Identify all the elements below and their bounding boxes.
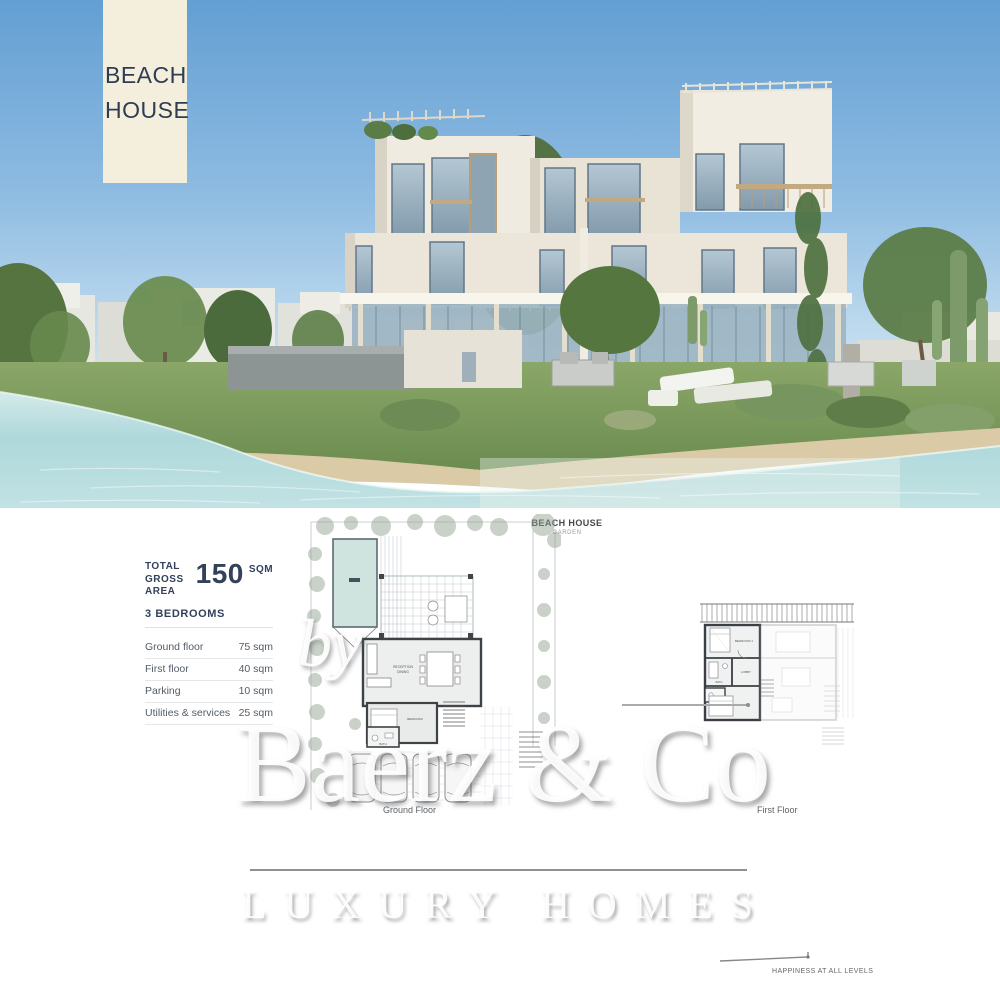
room-label: BEDROOM 1 bbox=[735, 639, 753, 643]
ground-floor-plan: RECEPTION DINING BEDROOM BATH bbox=[303, 514, 561, 818]
total-gross-area-label: TOTAL GROSS AREA bbox=[145, 561, 184, 599]
bedrooms-count: 3 BEDROOMS bbox=[145, 608, 273, 628]
total-gross-area: TOTAL GROSS AREA 150 SQM bbox=[145, 561, 273, 599]
parking-area bbox=[345, 752, 481, 802]
first-floor-label: First Floor bbox=[757, 805, 798, 815]
pool-deck bbox=[381, 536, 401, 640]
row-value: 40 sqm bbox=[239, 663, 273, 675]
exterior-stairs bbox=[519, 732, 543, 767]
row-value: 25 sqm bbox=[239, 707, 273, 719]
hero-photo: BEACH HOUSE bbox=[0, 0, 1000, 508]
watermark-tagline: LUXURY HOMES bbox=[242, 881, 771, 928]
stairs-faded bbox=[822, 728, 844, 744]
badge-line-1: BEACH bbox=[105, 58, 184, 93]
room-label: BATH bbox=[379, 742, 386, 746]
room-label: DINING bbox=[397, 670, 409, 674]
first-floor-terrace-faded bbox=[760, 625, 853, 720]
first-floor-plan: BEDROOM 1 LOBBY BATH bbox=[686, 594, 864, 750]
row-value: 75 sqm bbox=[239, 641, 273, 653]
specs-panel: TOTAL GROSS AREA 150 SQM 3 BEDROOMS Grou… bbox=[145, 561, 273, 725]
row-label: Utilities & services bbox=[145, 707, 230, 719]
table-row: Utilities & services 25 sqm bbox=[145, 703, 273, 725]
roof-pergola bbox=[700, 604, 854, 622]
badge-line-2: HOUSE bbox=[105, 93, 184, 128]
row-label: Ground floor bbox=[145, 641, 203, 653]
room-label: LOBBY bbox=[741, 670, 751, 674]
row-label: Parking bbox=[145, 685, 181, 697]
pool bbox=[333, 539, 377, 627]
bedroom-block: BEDROOM BATH bbox=[367, 703, 437, 747]
room-label: BATH bbox=[716, 680, 723, 684]
footer-tagline: HAPPINESS AT ALL LEVELS bbox=[772, 968, 873, 975]
table-row: Parking 10 sqm bbox=[145, 681, 273, 703]
row-value: 10 sqm bbox=[239, 685, 273, 697]
room-label: RECEPTION bbox=[393, 665, 413, 669]
table-row: Ground floor 75 sqm bbox=[145, 637, 273, 659]
table-row: First floor 40 sqm bbox=[145, 659, 273, 681]
total-gross-area-value: 150 bbox=[196, 558, 244, 590]
leader-line bbox=[622, 704, 748, 706]
driveway bbox=[481, 706, 513, 806]
total-gross-area-unit: SQM bbox=[249, 564, 273, 575]
ground-floor-label: Ground Floor bbox=[383, 805, 436, 815]
scale-line bbox=[718, 950, 818, 964]
room-label: BEDROOM bbox=[407, 717, 423, 721]
beach-house-badge: BEACH HOUSE bbox=[103, 0, 187, 183]
watermark-divider bbox=[250, 869, 747, 871]
area-table: Ground floor 75 sqm First floor 40 sqm P… bbox=[145, 637, 273, 725]
row-label: First floor bbox=[145, 663, 189, 675]
brochure-page: BEACH HOUSE TOTAL GROSS AREA 150 SQM 3 B… bbox=[0, 0, 1000, 1000]
